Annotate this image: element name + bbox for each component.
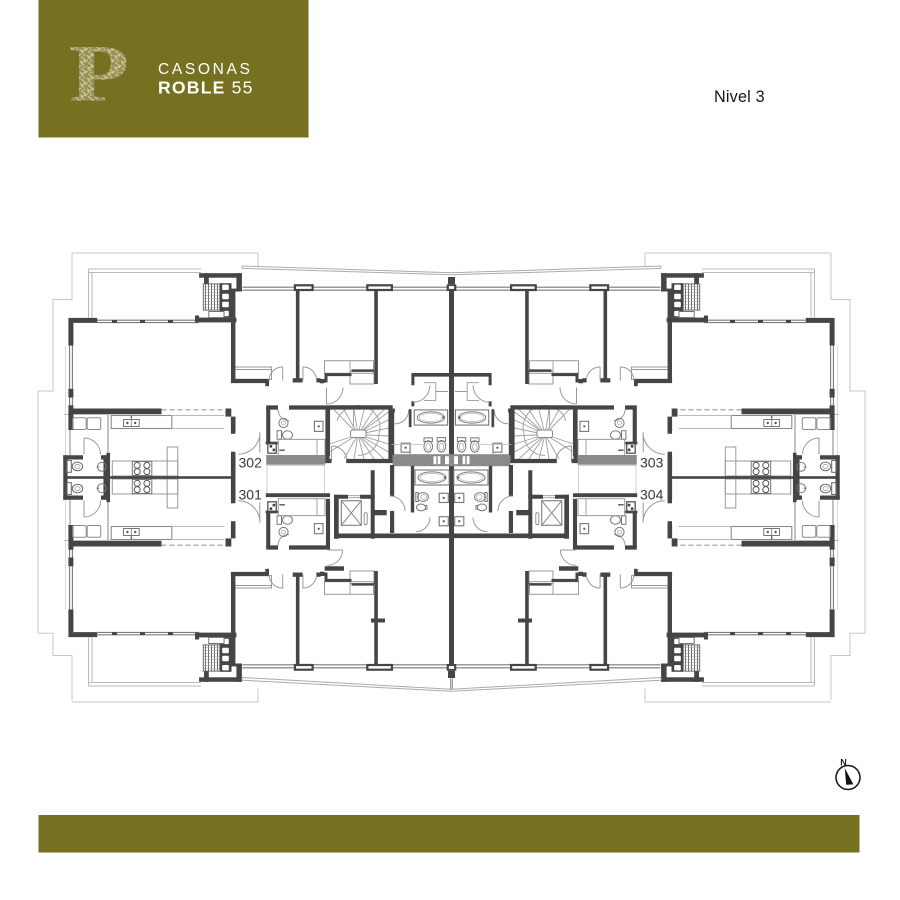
svg-text:302: 302 — [239, 454, 263, 470]
svg-text:301: 301 — [239, 487, 263, 503]
svg-text:303: 303 — [640, 454, 664, 470]
svg-text:N: N — [840, 758, 847, 768]
svg-text:Nivel 3: Nivel 3 — [714, 88, 765, 106]
svg-text:ROBLE 55: ROBLE 55 — [158, 78, 254, 98]
svg-text:P: P — [69, 27, 129, 118]
svg-text:CASONAS: CASONAS — [158, 61, 252, 78]
svg-text:304: 304 — [640, 487, 664, 503]
